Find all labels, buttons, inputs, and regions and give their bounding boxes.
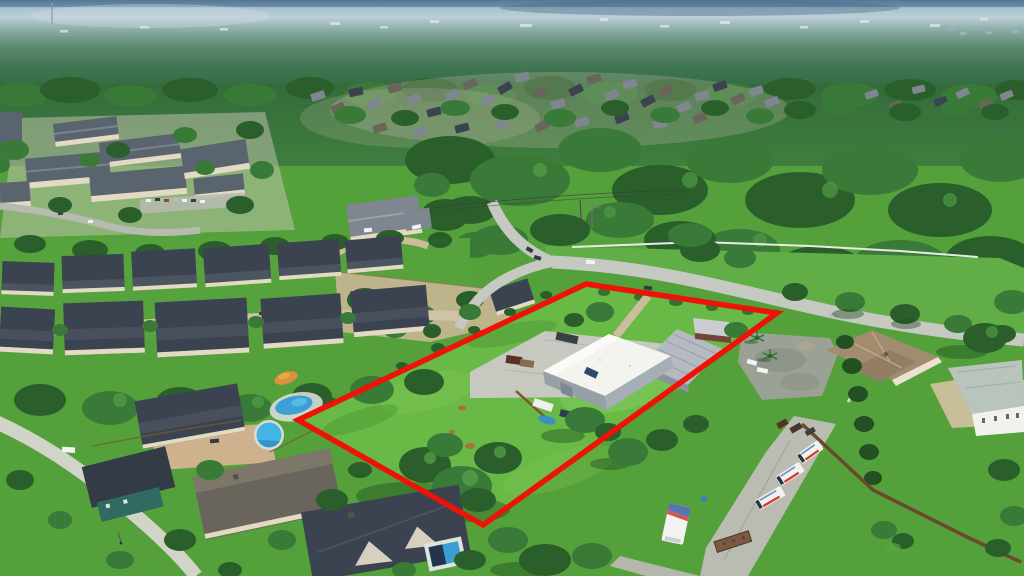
house bbox=[350, 285, 430, 337]
car-parked-shoulder bbox=[644, 285, 652, 290]
apartment-building bbox=[0, 112, 22, 142]
round-pool bbox=[254, 420, 284, 450]
house bbox=[63, 301, 145, 356]
white-pickup bbox=[62, 447, 75, 453]
car-on-road bbox=[586, 260, 595, 264]
house bbox=[155, 298, 250, 358]
house bbox=[345, 236, 404, 274]
blue-barrel bbox=[701, 496, 707, 502]
bush bbox=[871, 521, 897, 539]
house bbox=[203, 244, 272, 288]
house bbox=[61, 254, 124, 293]
house bbox=[1, 261, 54, 296]
car bbox=[364, 228, 372, 233]
house bbox=[0, 307, 55, 355]
oak-tree bbox=[963, 323, 1007, 353]
house bbox=[260, 293, 343, 348]
aerial-photo bbox=[0, 0, 1024, 576]
apartment-complex bbox=[0, 112, 295, 238]
house bbox=[131, 248, 197, 290]
house bbox=[277, 239, 341, 280]
